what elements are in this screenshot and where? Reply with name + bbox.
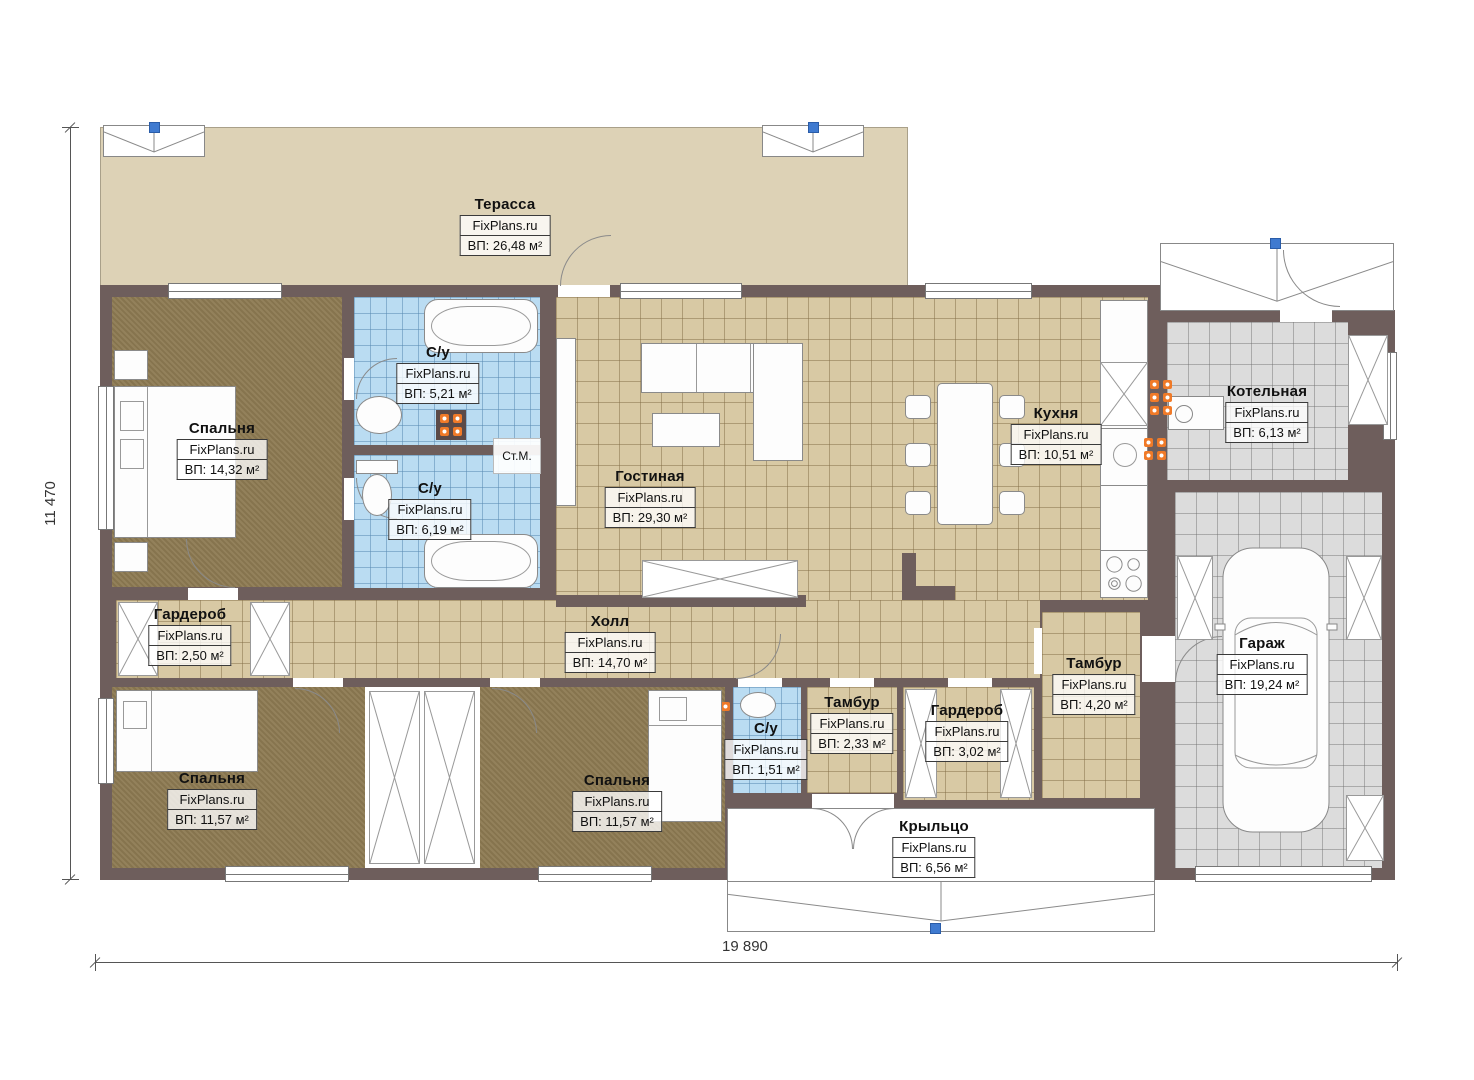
brand-label: FixPlans.ru (572, 791, 662, 812)
brand-label: FixPlans.ru (167, 789, 257, 810)
closet-x (1348, 335, 1388, 425)
door-gap (1034, 628, 1042, 674)
brand-label: FixPlans.ru (148, 625, 231, 646)
room-name: Тамбур (810, 694, 893, 711)
dimension-label-width: 19 890 (722, 938, 768, 955)
door-gap (490, 678, 540, 687)
door-gap (344, 478, 354, 520)
sink (356, 396, 402, 434)
dining-table (937, 383, 993, 525)
brand-label: FixPlans.ru (1052, 674, 1135, 695)
chair (999, 491, 1025, 515)
room-name: Спальня (167, 770, 257, 787)
brand-label: FixPlans.ru (810, 713, 893, 734)
window (538, 866, 652, 882)
room-label-vestibule-1: Тамбур FixPlans.ru ВП: 2,33 м² (810, 694, 893, 754)
door-gap (188, 588, 238, 600)
room-area: ВП: 3,02 м² (925, 742, 1008, 762)
tv-cabinet (642, 560, 798, 598)
garage-door (1195, 866, 1372, 882)
nightstand (114, 350, 148, 380)
room-name: Гараж (1217, 635, 1308, 652)
room-label-living-room: Гостиная FixPlans.ru ВП: 29,30 м² (605, 468, 696, 528)
coffee-table (652, 413, 720, 447)
entry-door-gap (812, 794, 894, 808)
room-label-bedroom-3: Спальня FixPlans.ru ВП: 11,57 м² (572, 772, 662, 832)
room-name: С/у (396, 344, 479, 361)
room-name: Гардероб (148, 606, 231, 623)
kitchen-sink (1100, 428, 1148, 486)
chair (905, 395, 931, 419)
room-area: ВП: 1,51 м² (724, 760, 807, 780)
brand-label: FixPlans.ru (177, 439, 268, 460)
door-gap (344, 358, 354, 400)
washing-machine-label: Ст.М. (502, 449, 532, 463)
closet-x (424, 691, 475, 864)
door-gap (830, 678, 874, 687)
closet-x (250, 602, 290, 676)
window (98, 698, 114, 784)
room-name: Терасса (460, 196, 551, 213)
closet-x (1346, 556, 1382, 640)
radiator-dots (436, 410, 466, 440)
room-area: ВП: 6,13 м² (1225, 423, 1308, 443)
room-name: Гардероб (925, 702, 1008, 719)
room-area: ВП: 5,21 м² (396, 384, 479, 404)
room-name: Кухня (1011, 405, 1102, 422)
shelf (556, 338, 576, 506)
room-name: Холл (565, 613, 656, 630)
stove (1100, 550, 1148, 598)
room-name: Спальня (177, 420, 268, 437)
room-label-bath-1: С/у FixPlans.ru ВП: 5,21 м² (396, 344, 479, 404)
door-gap (1142, 636, 1175, 682)
room-label-bedroom-1: Спальня FixPlans.ru ВП: 14,32 м² (177, 420, 268, 480)
sofa-chaise (753, 343, 803, 461)
dimension-label-height: 11 470 (42, 481, 59, 526)
marker-dot (930, 923, 941, 934)
brand-label: FixPlans.ru (1217, 654, 1308, 675)
chair (905, 443, 931, 467)
room-label-kitchen: Кухня FixPlans.ru ВП: 10,51 м² (1011, 405, 1102, 465)
room-area: ВП: 2,33 м² (810, 734, 893, 754)
room-label-wardrobe-1: Гардероб FixPlans.ru ВП: 2,50 м² (148, 606, 231, 666)
porch-steps (727, 880, 1155, 932)
brand-label: FixPlans.ru (388, 499, 471, 520)
brand-label: FixPlans.ru (892, 837, 975, 858)
room-label-bath-2: С/у FixPlans.ru ВП: 6,19 м² (388, 480, 471, 540)
brand-label: FixPlans.ru (1011, 424, 1102, 445)
room-area: ВП: 11,57 м² (572, 812, 662, 832)
closet-x (1177, 556, 1213, 640)
marker-dot (808, 122, 819, 133)
brand-label: FixPlans.ru (724, 739, 807, 760)
sink (740, 692, 776, 718)
window (98, 386, 114, 530)
window (168, 283, 282, 299)
brand-label: FixPlans.ru (565, 632, 656, 653)
room-area: ВП: 29,30 м² (605, 508, 696, 528)
room-label-porch: Крыльцо FixPlans.ru ВП: 6,56 м² (892, 818, 975, 878)
window (620, 283, 742, 299)
dimension-line-width (95, 962, 1398, 963)
room-area: ВП: 26,48 м² (460, 236, 551, 256)
brand-label: FixPlans.ru (605, 487, 696, 508)
room-label-vestibule-2: Тамбур FixPlans.ru ВП: 4,20 м² (1052, 655, 1135, 715)
fridge (1100, 362, 1148, 426)
room-name: С/у (388, 480, 471, 497)
radiator-dots (1144, 438, 1166, 460)
brand-label: FixPlans.ru (460, 215, 551, 236)
room-area: ВП: 11,57 м² (167, 810, 257, 830)
room-name: С/у (724, 720, 807, 737)
room-label-wardrobe-2: Гардероб FixPlans.ru ВП: 3,02 м² (925, 702, 1008, 762)
room-label-bedroom-2: Спальня FixPlans.ru ВП: 11,57 м² (167, 770, 257, 830)
closet-x (1346, 795, 1384, 861)
window (925, 283, 1032, 299)
room-label-boiler-room: Котельная FixPlans.ru ВП: 6,13 м² (1225, 383, 1308, 443)
floor-hall (292, 600, 1040, 678)
brand-label: FixPlans.ru (1225, 402, 1308, 423)
room-area: ВП: 10,51 м² (1011, 445, 1102, 465)
door-gap (558, 285, 610, 297)
room-label-terrace: Терасса FixPlans.ru ВП: 26,48 м² (460, 196, 551, 256)
room-name: Тамбур (1052, 655, 1135, 672)
toilet-tank (356, 460, 398, 474)
room-name: Гостиная (605, 468, 696, 485)
door-gap (293, 678, 343, 687)
window (225, 866, 349, 882)
room-name: Крыльцо (892, 818, 975, 835)
room-area: ВП: 14,70 м² (565, 653, 656, 673)
nightstand (114, 542, 148, 572)
closet-x (369, 691, 420, 864)
brand-label: FixPlans.ru (925, 721, 1008, 742)
door-gap (948, 678, 992, 687)
floor-plan: Ст.М. (0, 0, 1474, 1080)
bathtub (424, 534, 538, 588)
room-area: ВП: 2,50 м² (148, 646, 231, 666)
brand-label: FixPlans.ru (396, 363, 479, 384)
marker-dot (149, 122, 160, 133)
door-gap (738, 678, 782, 687)
room-area: ВП: 6,56 м² (892, 858, 975, 878)
radiator-dots (1150, 380, 1172, 415)
marker-dot (1270, 238, 1281, 249)
chair (905, 491, 931, 515)
porch-canopy-top (1160, 243, 1394, 311)
wall-column (902, 586, 955, 600)
room-area: ВП: 19,24 м² (1217, 675, 1308, 695)
room-name: Спальня (572, 772, 662, 789)
room-name: Котельная (1225, 383, 1308, 400)
room-label-garage: Гараж FixPlans.ru ВП: 19,24 м² (1217, 635, 1308, 695)
bed (116, 690, 258, 772)
dimension-line-height (70, 127, 71, 880)
room-label-hall: Холл FixPlans.ru ВП: 14,70 м² (565, 613, 656, 673)
room-area: ВП: 4,20 м² (1052, 695, 1135, 715)
room-label-bath-3: С/у FixPlans.ru ВП: 1,51 м² (724, 720, 807, 780)
washing-machine: Ст.М. (493, 438, 541, 474)
room-area: ВП: 14,32 м² (177, 460, 268, 480)
door-gap (1280, 308, 1332, 322)
room-area: ВП: 6,19 м² (388, 520, 471, 540)
boiler-unit (1168, 396, 1224, 430)
